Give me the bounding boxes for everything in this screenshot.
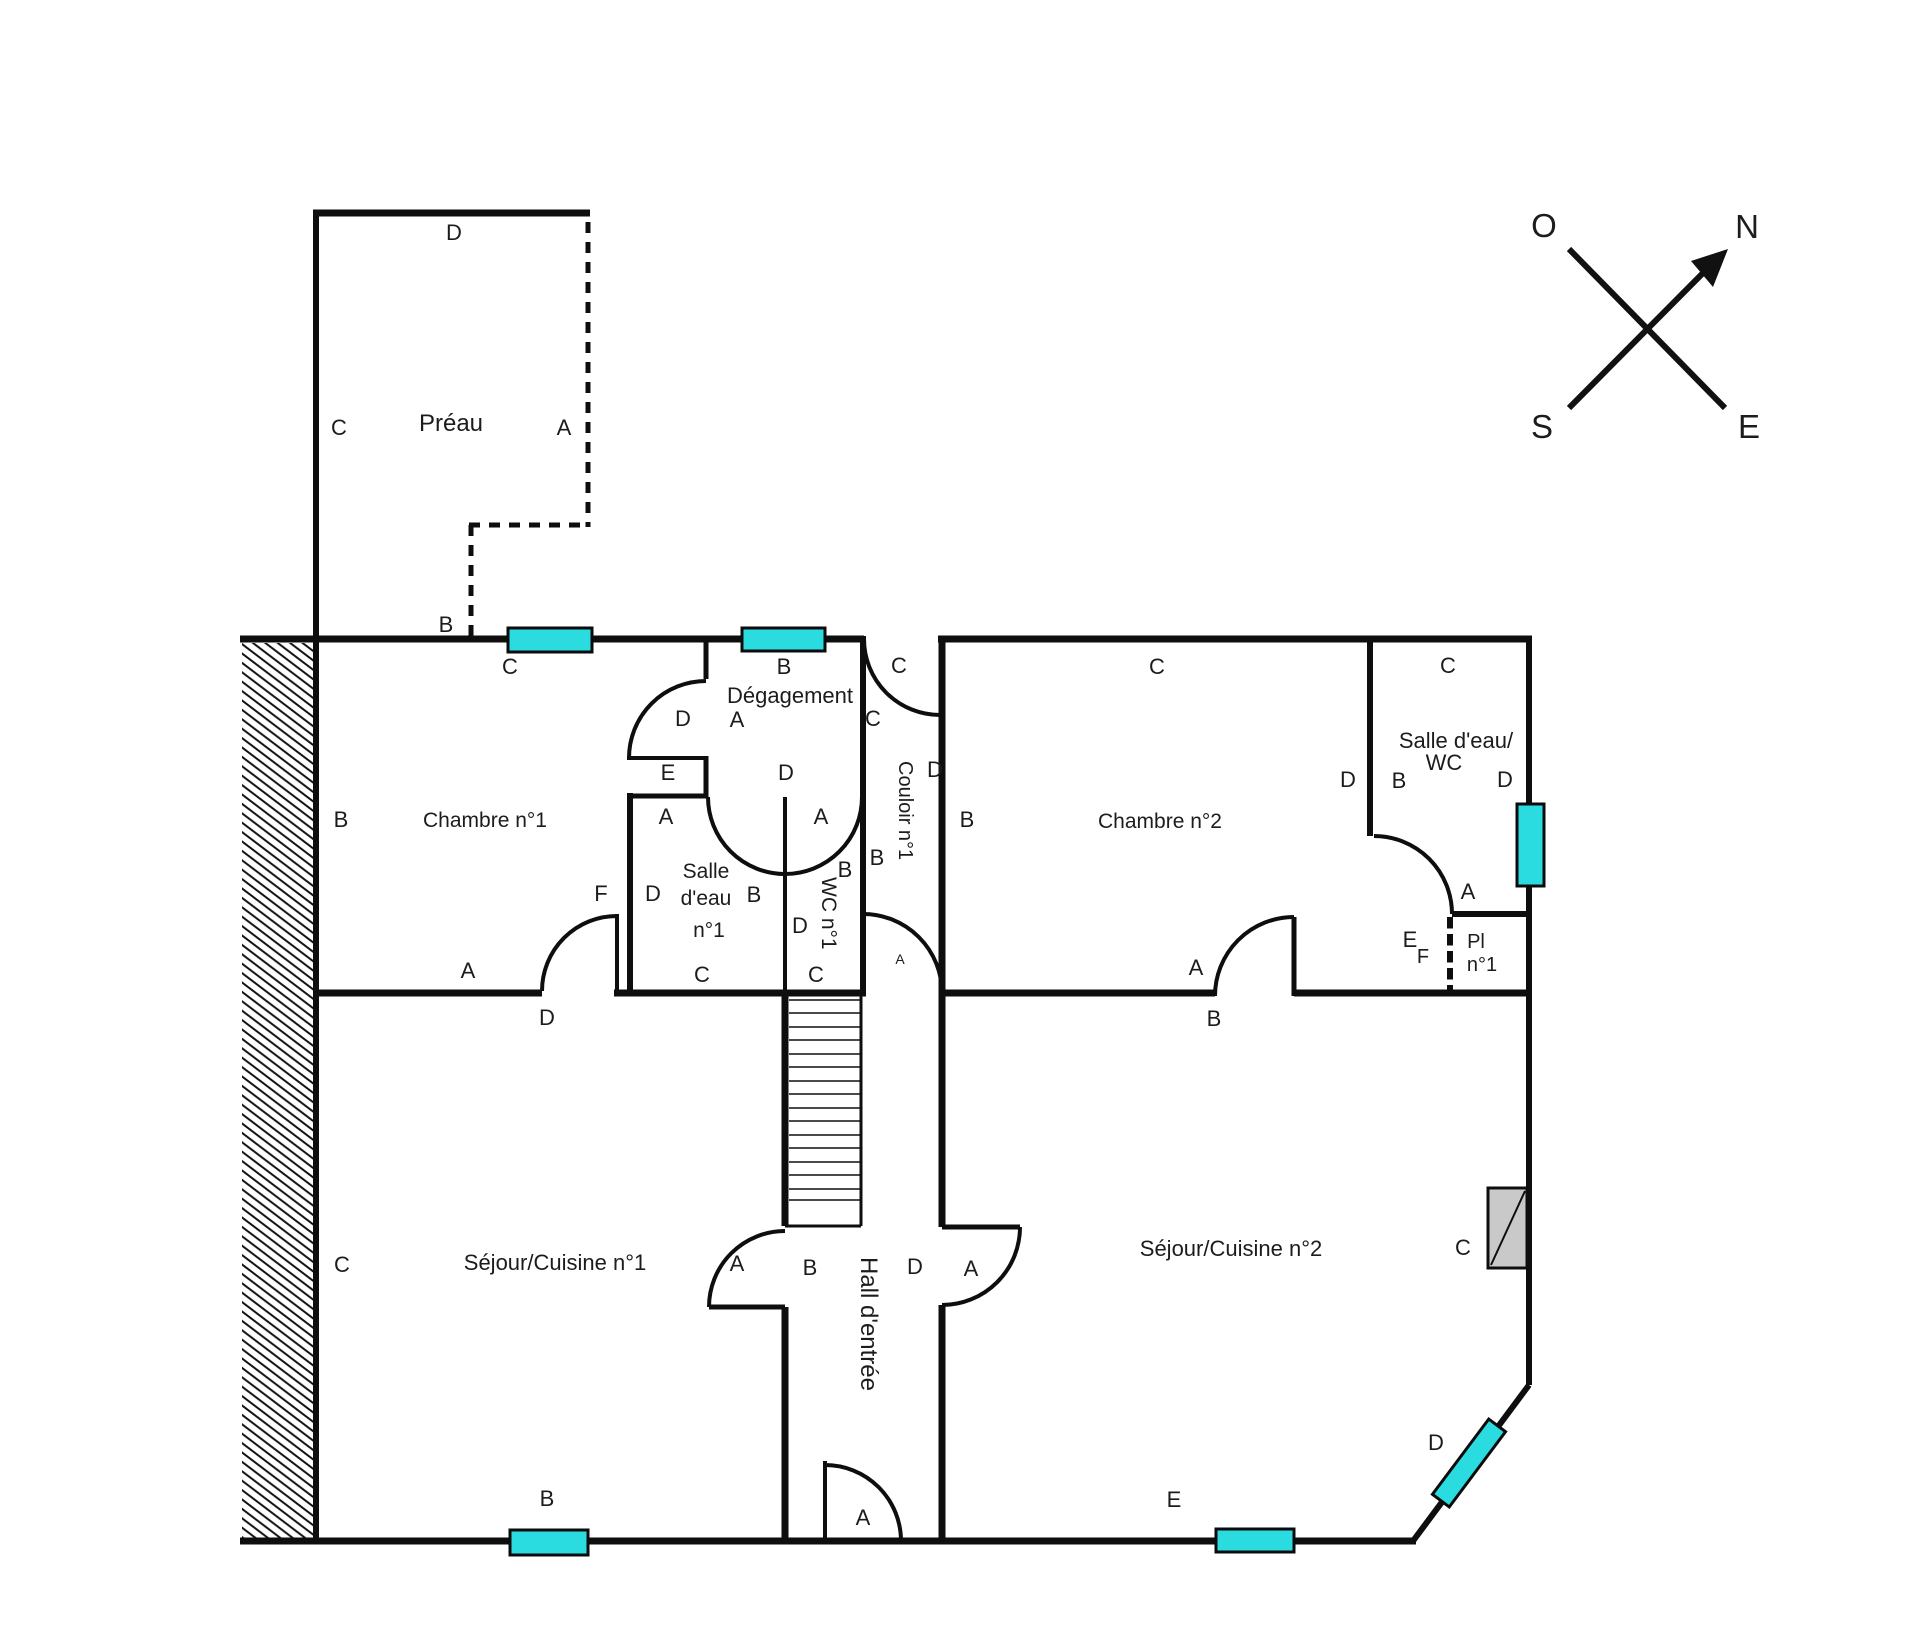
svg-text:D: D — [1428, 1430, 1444, 1455]
svg-text:S: S — [1531, 408, 1553, 445]
svg-text:B: B — [777, 654, 792, 679]
svg-text:D: D — [446, 220, 462, 245]
svg-text:A: A — [856, 1505, 871, 1530]
svg-text:E: E — [1738, 408, 1760, 445]
svg-text:D: D — [927, 757, 943, 782]
svg-text:C: C — [1440, 653, 1456, 678]
svg-text:n°1: n°1 — [693, 919, 725, 942]
svg-text:D: D — [792, 913, 808, 938]
svg-text:D: D — [778, 760, 794, 785]
svg-text:N: N — [1735, 208, 1759, 245]
svg-text:B: B — [334, 807, 349, 832]
svg-text:E: E — [1403, 927, 1418, 952]
svg-text:B: B — [439, 612, 454, 637]
svg-text:B: B — [1207, 1006, 1222, 1031]
svg-text:D: D — [539, 1005, 555, 1030]
svg-text:B: B — [838, 857, 853, 882]
svg-text:Hall d'entrée: Hall d'entrée — [855, 1257, 882, 1391]
svg-text:C: C — [502, 654, 518, 679]
svg-text:B: B — [747, 882, 762, 907]
svg-text:Chambre n°2: Chambre n°2 — [1098, 810, 1222, 833]
svg-text:n°1: n°1 — [1467, 954, 1497, 976]
svg-text:Préau: Préau — [419, 410, 483, 437]
svg-text:C: C — [1455, 1235, 1471, 1260]
svg-text:A: A — [814, 804, 829, 829]
svg-text:D: D — [1497, 767, 1513, 792]
svg-text:A: A — [557, 415, 572, 440]
svg-text:D: D — [645, 881, 661, 906]
svg-text:Pl: Pl — [1467, 931, 1485, 953]
svg-text:C: C — [891, 653, 907, 678]
svg-text:Couloir n°1: Couloir n°1 — [894, 761, 916, 860]
svg-text:A: A — [1189, 955, 1204, 980]
svg-text:A: A — [461, 958, 476, 983]
svg-text:B: B — [803, 1255, 818, 1280]
svg-text:WC n°1: WC n°1 — [817, 877, 840, 950]
svg-text:C: C — [865, 706, 881, 731]
svg-text:C: C — [331, 415, 347, 440]
svg-text:B: B — [540, 1486, 555, 1511]
svg-text:A: A — [895, 951, 905, 967]
svg-text:A: A — [659, 804, 674, 829]
svg-text:d'eau: d'eau — [681, 887, 732, 910]
svg-text:C: C — [334, 1252, 350, 1277]
svg-text:C: C — [694, 962, 710, 987]
svg-text:B: B — [1392, 768, 1407, 793]
svg-text:F: F — [594, 881, 607, 906]
svg-text:E: E — [1167, 1487, 1182, 1512]
svg-text:B: B — [870, 845, 885, 870]
svg-text:A: A — [730, 1251, 745, 1276]
svg-text:A: A — [730, 707, 745, 732]
svg-text:C: C — [808, 962, 824, 987]
svg-text:Chambre n°1: Chambre n°1 — [423, 809, 547, 832]
svg-text:Séjour/Cuisine n°2: Séjour/Cuisine n°2 — [1140, 1236, 1322, 1261]
svg-text:WC: WC — [1426, 750, 1463, 775]
svg-text:Salle: Salle — [683, 860, 730, 883]
svg-text:D: D — [675, 706, 691, 731]
svg-text:E: E — [661, 760, 676, 785]
svg-text:O: O — [1531, 207, 1557, 244]
svg-text:Séjour/Cuisine n°1: Séjour/Cuisine n°1 — [464, 1250, 646, 1275]
svg-text:D: D — [907, 1254, 923, 1279]
svg-text:A: A — [1461, 879, 1476, 904]
svg-text:A: A — [964, 1256, 979, 1281]
svg-text:D: D — [1340, 767, 1356, 792]
svg-text:C: C — [1149, 654, 1165, 679]
svg-text:B: B — [960, 807, 975, 832]
svg-text:F: F — [1417, 946, 1429, 968]
svg-text:Dégagement: Dégagement — [727, 683, 853, 708]
